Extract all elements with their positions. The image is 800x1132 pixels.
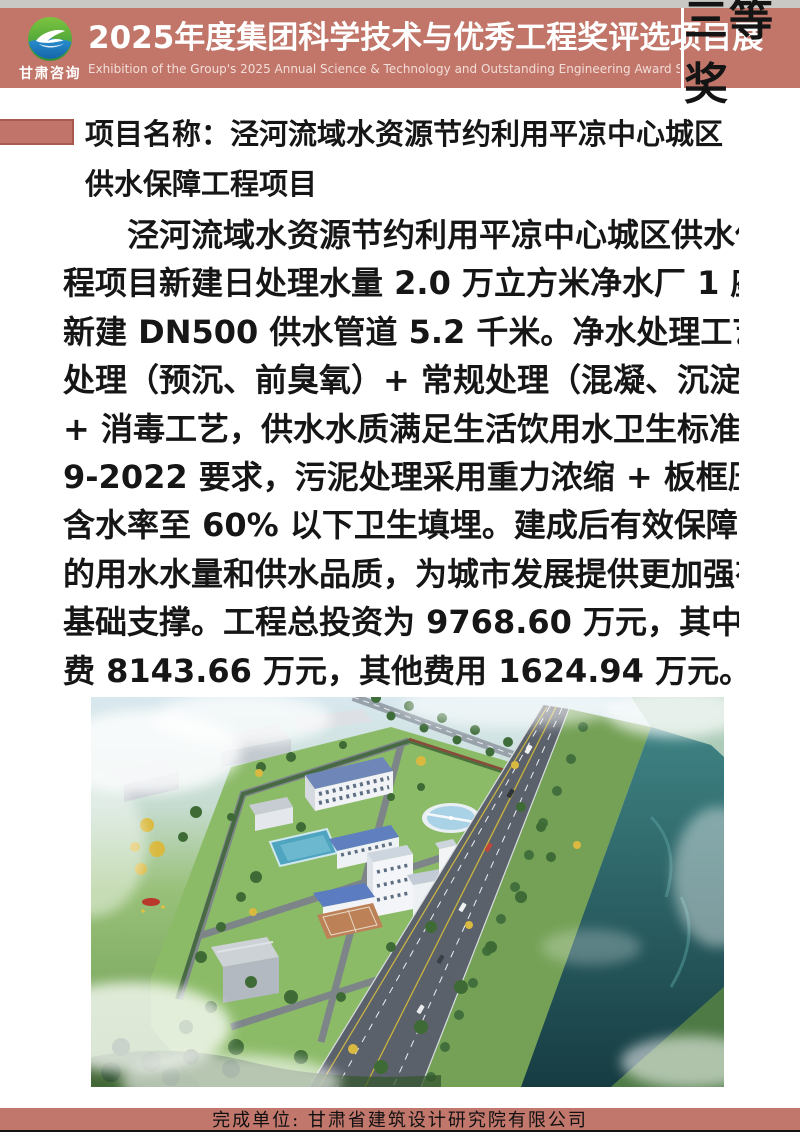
description-line: + 消毒工艺，供水水质满足生活饮用水卫生标准 GB574 <box>63 405 739 453</box>
top-gray-strip <box>0 0 800 8</box>
logo-block: 甘肃咨询 <box>10 14 90 83</box>
banner-subtitle-en: Exhibition of the Group's 2025 Annual Sc… <box>88 62 680 76</box>
plant-aerial-rendering <box>91 697 724 1087</box>
footer-band: 完成单位: 甘肃省建筑设计研究院有限公司 <box>0 1108 800 1132</box>
description-line: 程项目新建日处理水量 2.0 万立方米净水厂 1 座，配套 <box>63 259 739 307</box>
award-poster-page: 甘肃咨询 2025年度集团科学技术与优秀工程奖评选项目展 Exhibition … <box>0 0 800 1132</box>
description-line: 新建 DN500 供水管道 5.2 千米。净水处理工艺采用预 <box>63 308 739 356</box>
logo-org-name: 甘肃咨询 <box>10 63 90 83</box>
project-name-bullet <box>0 119 74 145</box>
banner-title: 2025年度集团科学技术与优秀工程奖评选项目展 <box>88 21 680 57</box>
description-line: 泾河流域水资源节约利用平凉中心城区供水保障工 <box>63 211 739 259</box>
completing-unit: 完成单位: 甘肃省建筑设计研究院有限公司 <box>212 1106 588 1132</box>
description-line: 的用水水量和供水品质，为城市发展提供更加强有力的 <box>63 550 739 598</box>
description-line: 基础支撑。工程总投资为 9768.60 万元，其中：工程 <box>63 598 739 646</box>
description-line: 处理（预沉、前臭氧）+ 常规处理（混凝、沉淀、过滤） <box>63 356 739 404</box>
banner-title-block: 2025年度集团科学技术与优秀工程奖评选项目展 Exhibition of th… <box>88 21 680 76</box>
aerial-rendering-graphic <box>91 697 724 1087</box>
award-badge: 三等奖 <box>684 8 797 88</box>
project-name-line2: 供水保障工程项目 <box>85 161 317 203</box>
description-line: 9-2022 要求，污泥处理采用重力浓缩 + 板框压滤工艺， <box>63 453 739 501</box>
gansu-consulting-logo-icon <box>27 16 73 62</box>
project-description: 泾河流域水资源节约利用平凉中心城区供水保障工 程项目新建日处理水量 2.0 万立… <box>63 211 739 695</box>
description-line: 含水率至 60% 以下卫生填埋。建成后有效保障了城区 <box>63 501 739 549</box>
description-line: 费 8143.66 万元，其他费用 1624.94 万元。 <box>63 647 739 695</box>
header-banner: 甘肃咨询 2025年度集团科学技术与优秀工程奖评选项目展 Exhibition … <box>0 8 800 88</box>
project-name-line1: 项目名称：泾河流域水资源节约利用平凉中心城区 <box>85 111 723 153</box>
